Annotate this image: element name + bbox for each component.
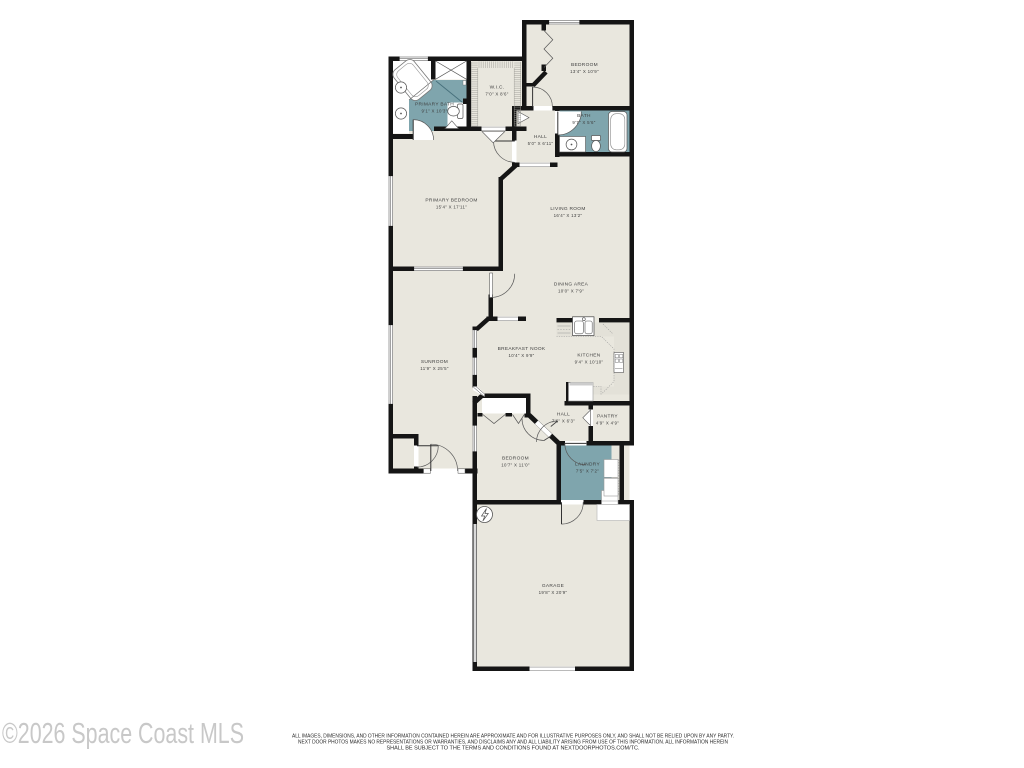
svg-text:SHALL BE SUBJECT TO THE TERMS: SHALL BE SUBJECT TO THE TERMS AND CONDIT… [387, 746, 640, 752]
svg-text:9'4" X 10'10": 9'4" X 10'10" [575, 360, 604, 365]
svg-text:9'1" X 10'3": 9'1" X 10'3" [422, 109, 448, 114]
svg-text:DINING AREA: DINING AREA [554, 282, 589, 288]
svg-text:7'0" X 8'6": 7'0" X 8'6" [485, 92, 508, 97]
svg-text:10'0" X 7'9": 10'0" X 7'9" [558, 289, 584, 294]
svg-text:LIVING ROOM: LIVING ROOM [550, 206, 585, 212]
svg-text:KITCHEN: KITCHEN [577, 353, 600, 359]
svg-text:BEDROOM: BEDROOM [571, 62, 598, 68]
svg-text:BEDROOM: BEDROOM [502, 456, 529, 462]
svg-text:PRIMARY BATH: PRIMARY BATH [415, 102, 454, 108]
svg-text:15'4" X 17'11": 15'4" X 17'11" [436, 205, 467, 210]
svg-text:BATH: BATH [577, 113, 591, 119]
svg-text:PANTRY: PANTRY [597, 414, 618, 420]
svg-text:7'5" X 7'2": 7'5" X 7'2" [576, 469, 599, 474]
svg-text:16'4" X 13'2": 16'4" X 13'2" [554, 213, 583, 218]
svg-text:10'7" X 11'0": 10'7" X 11'0" [501, 463, 530, 468]
svg-text:W.I.C.: W.I.C. [490, 85, 505, 91]
svg-text:4'9" X 4'9": 4'9" X 4'9" [596, 421, 619, 426]
svg-text:HALL: HALL [534, 134, 547, 140]
svg-text:BREAKFAST NOOK: BREAKFAST NOOK [498, 346, 546, 352]
svg-text:10'4" X 9'9": 10'4" X 9'9" [509, 353, 535, 358]
svg-text:HALL: HALL [557, 412, 570, 418]
svg-text:PRIMARY BEDROOM: PRIMARY BEDROOM [425, 198, 477, 204]
svg-text:5'0" X 6'11": 5'0" X 6'11" [528, 141, 554, 146]
svg-text:9'7" X 5'6": 9'7" X 5'6" [572, 120, 595, 125]
svg-text:LAUNDRY: LAUNDRY [575, 462, 600, 468]
svg-text:SUNROOM: SUNROOM [421, 359, 448, 365]
svg-text:13'4" X 10'9": 13'4" X 10'9" [570, 69, 599, 74]
svg-text:GARAGE: GARAGE [542, 583, 564, 589]
svg-text:19'8" X 20'9": 19'8" X 20'9" [539, 590, 568, 595]
svg-text:7'6" X 6'3": 7'6" X 6'3" [552, 419, 575, 424]
svg-text:©2026 Space Coast MLS: ©2026 Space Coast MLS [2, 718, 244, 750]
svg-text:11'9" X 25'5": 11'9" X 25'5" [420, 366, 449, 371]
